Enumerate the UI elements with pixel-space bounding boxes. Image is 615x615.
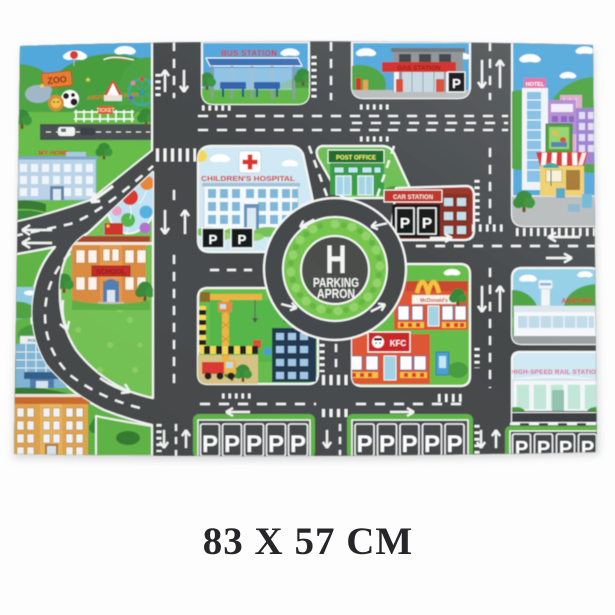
svg-text:83 X 57 CM: 83 X 57 CM: [203, 520, 413, 563]
